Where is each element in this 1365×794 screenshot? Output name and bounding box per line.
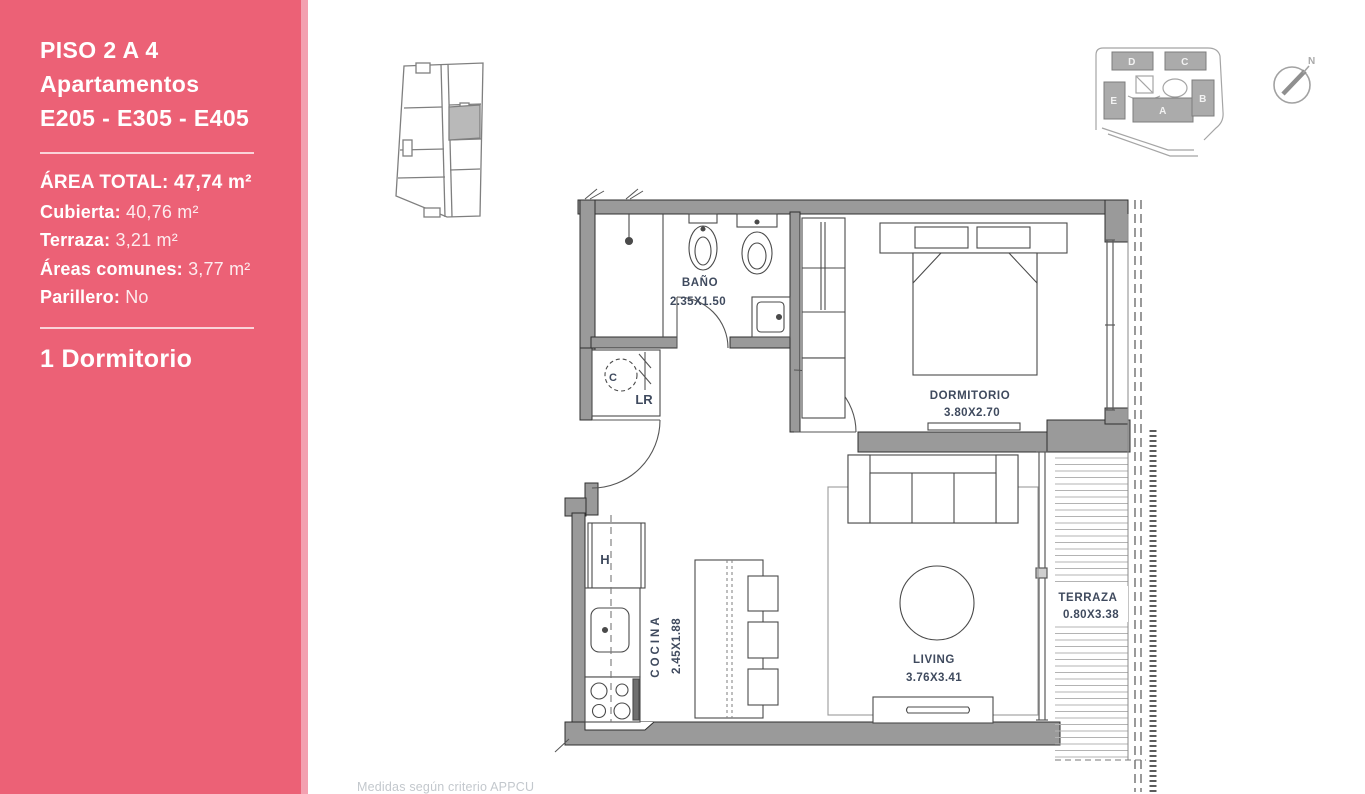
shower-head-icon (626, 238, 633, 245)
bed-bench (928, 423, 1020, 430)
sidebar-edge-strip (301, 0, 308, 794)
pillow (977, 227, 1030, 248)
stool (748, 576, 778, 611)
terrace-deck (1055, 214, 1146, 760)
floor-title-line3: E205 - E305 - E405 (40, 101, 280, 135)
bidet-tank (689, 214, 717, 223)
comunes-label: Áreas comunes: (40, 259, 183, 279)
area-total-label: ÁREA TOTAL: (40, 172, 169, 193)
area-total-row: ÁREA TOTAL: 47,74 m² (40, 169, 280, 198)
faucet-icon (777, 315, 782, 320)
wall-notch (585, 722, 654, 730)
stove-panel (633, 679, 639, 720)
stool (748, 669, 778, 705)
block-d-label: D (1128, 57, 1136, 68)
bedroom-label: DORMITORIO (930, 390, 1011, 402)
building-key-plan (396, 63, 483, 217)
block-c-label: C (1181, 57, 1189, 68)
compass-north-icon: N (1274, 56, 1315, 103)
comunes-value: 3,77 m² (188, 259, 250, 279)
area-comunes-row: Áreas comunes: 3,77 m² (40, 255, 280, 284)
terrace-dims: 0.80X3.38 (1063, 609, 1119, 621)
stove (585, 677, 640, 722)
parillero-label: Parillero: (40, 287, 120, 307)
living-label: LIVING (913, 654, 955, 666)
bathroom-fixtures (626, 214, 791, 337)
parillero-value: No (125, 287, 148, 307)
terrace-label: TERRAZA (1058, 592, 1117, 604)
block-b-label: B (1199, 94, 1207, 105)
pillow (915, 227, 968, 248)
bathroom-dims: 2.35X1.50 (670, 296, 726, 308)
bed (913, 253, 1037, 375)
kitchen-label: COCINA (650, 614, 662, 677)
stool (748, 622, 778, 658)
terraza-value: 3,21 m² (116, 230, 178, 250)
headboard (880, 223, 1067, 253)
fridge-label: H (600, 552, 609, 567)
highlighted-unit (449, 105, 480, 140)
terrace-railing (1135, 200, 1153, 792)
cubierta-value: 40,76 m² (126, 202, 199, 222)
laundry-label: LR (635, 392, 653, 407)
cubierta-label: Cubierta: (40, 202, 121, 222)
heater-label: C (609, 372, 617, 384)
bathroom-label: BAÑO (682, 276, 718, 289)
round-table (900, 566, 974, 640)
floor-title-line1: PISO 2 A 4 (40, 33, 280, 67)
area-total-value: 47,74 m² (174, 172, 252, 193)
bedroom-dims: 3.80X2.70 (944, 407, 1000, 419)
info-sidebar: PISO 2 A 4 Apartamentos E205 - E305 - E4… (0, 0, 308, 794)
fridge-unit (588, 523, 645, 588)
block-a-label: A (1159, 106, 1167, 117)
divider (40, 152, 254, 154)
kitchen-dims: 2.45X1.88 (671, 618, 683, 674)
area-cubierta-row: Cubierta: 40,76 m² (40, 198, 280, 227)
wardrobe (802, 218, 845, 358)
divider (40, 327, 254, 329)
area-terraza-row: Terraza: 3,21 m² (40, 226, 280, 255)
area-parillero-row: Parillero: No (40, 283, 280, 312)
bedroom-window (1105, 240, 1115, 410)
area-summary: ÁREA TOTAL: 47,74 m² Cubierta: 40,76 m² … (40, 169, 280, 312)
north-label: N (1308, 56, 1315, 67)
site-plan: D C E A B (1096, 48, 1223, 156)
terraza-label: Terraza: (40, 230, 110, 250)
measurement-note: Medidas según criterio APPCU (357, 780, 534, 794)
living-dims: 3.76X3.41 (906, 672, 962, 684)
kitchen-sink (591, 608, 629, 652)
floor-title-line2: Apartamentos (40, 67, 280, 101)
floor-plan-canvas: D C E A B N (308, 0, 1365, 794)
floor-title: PISO 2 A 4 Apartamentos E205 - E305 - E4… (40, 33, 280, 135)
block-e-label: E (1110, 96, 1117, 107)
unit-type: 1 Dormitorio (40, 345, 280, 374)
